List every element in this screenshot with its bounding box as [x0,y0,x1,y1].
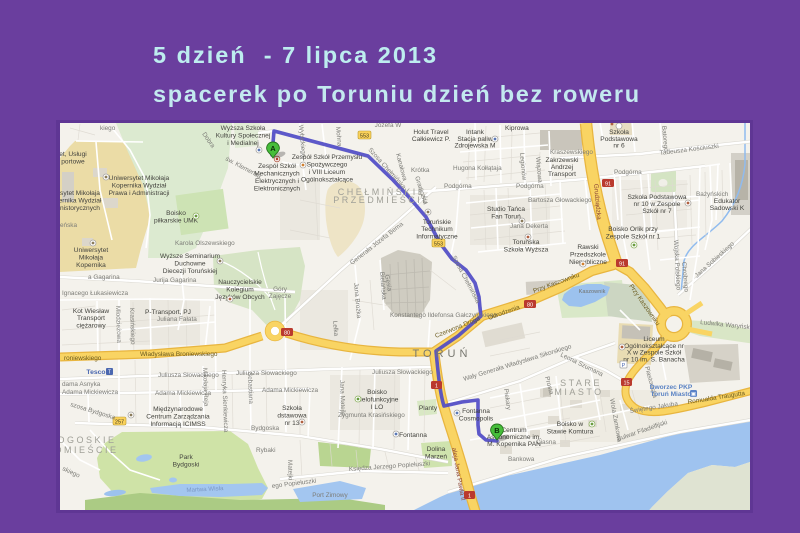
svg-text:Jana Matejki: Jana Matejki [338,380,346,416]
svg-text:Krasińskiego: Krasińskiego [128,308,136,345]
svg-text:P: P [622,363,626,369]
svg-text:Rybaki: Rybaki [256,447,276,454]
svg-text:Podgórna: Podgórna [516,183,544,190]
svg-text:kiego: kiego [100,125,116,132]
svg-text:Krótka: Krótka [411,167,430,174]
svg-text:Port Zimowy: Port Zimowy [312,492,348,499]
svg-text:Bankowa: Bankowa [508,456,535,463]
svg-text:Kaszownik: Kaszownik [579,289,606,295]
svg-text:Studio TańcaFan Toruń: Studio TańcaFan Toruń [487,206,525,221]
svg-text:Tesco: Tesco [86,369,105,376]
svg-text:Juliusza Słowackiego: Juliusza Słowackiego [158,372,219,379]
svg-text:TORUŃ: TORUŃ [413,347,472,360]
svg-text:Zygmunta Krasińskiego: Zygmunta Krasińskiego [338,412,405,419]
svg-text:T: T [108,370,111,376]
svg-text:Bydgoska: Bydgoska [251,425,280,432]
svg-text:spacerek po Toruniu dzień bez: spacerek po Toruniu dzień bez roweru [153,81,641,107]
svg-text:Uniwersytet MikołajaKopernika: Uniwersytet MikołajaKopernika WydziałPra… [109,175,170,197]
svg-text:Kiprowa: Kiprowa [505,125,529,132]
svg-text:Władysława Broniewskiego: Władysława Broniewskiego [140,351,218,358]
svg-text:PRZEDMIEŚCIE: PRZEDMIEŚCIE [333,194,431,205]
svg-text:5 dzień - 7 lipca 2013: 5 dzień - 7 lipca 2013 [153,42,438,68]
svg-text:DMIEŚCIE: DMIEŚCIE [55,444,119,455]
svg-text:Jurija Gagarina: Jurija Gagarina [153,277,197,284]
svg-text:B: B [494,426,500,435]
svg-text:Adama Mickiewicza: Adama Mickiewicza [62,389,119,396]
svg-text:Juliusza Słowackiego: Juliusza Słowackiego [372,369,433,376]
svg-text:Bażyńskich: Bażyńskich [696,191,729,198]
svg-text:Podgórna: Podgórna [614,169,642,176]
svg-text:Jana Dekerta: Jana Dekerta [510,223,548,230]
svg-text:Juliana Fałata: Juliana Fałata [157,316,197,323]
svg-text:1: 1 [435,383,438,389]
svg-text:sytet Mikołajaernika Wydziałni: sytet Mikołajaernika Wydziałnistorycznyc… [59,190,102,212]
svg-text:Karola Olszewskiego: Karola Olszewskiego [175,240,235,247]
svg-text:DGOSKIE: DGOSKIE [58,435,117,445]
svg-text:MiędzynarodoweCentrum Zarządza: MiędzynarodoweCentrum ZarządzaniaInforma… [146,406,210,428]
svg-text:EdukatorSadowski K: EdukatorSadowski K [710,198,745,212]
svg-text:Podgórna: Podgórna [444,183,472,190]
svg-text:A: A [270,144,276,153]
svg-text:Sebastiana: Sebastiana [246,372,254,405]
svg-text:a Gagarina: a Gagarina [88,274,120,281]
svg-text:Bartosza Głowackiego: Bartosza Głowackiego [528,197,592,204]
svg-text:Fontanna: Fontanna [399,432,427,439]
svg-text:15: 15 [623,380,629,386]
svg-text:Kot WiesławTransportciężarowy: Kot WiesławTransportciężarowy [73,308,110,329]
svg-text:eńska: eńska [60,222,77,229]
svg-text:Konstantego Ildefonsa Gałczyńs: Konstantego Ildefonsa Gałczyńskiego [390,312,497,319]
svg-text:80: 80 [284,330,290,336]
svg-text:Matejki: Matejki [286,460,294,480]
svg-text:Adama Mickiewicza: Adama Mickiewicza [262,387,319,394]
svg-text:MIASTO: MIASTO [554,387,603,397]
svg-text:FontannaCosmopolis: FontannaCosmopolis [459,408,494,423]
svg-text:80: 80 [527,302,533,308]
svg-text:Lelka: Lelka [331,321,339,337]
svg-text:553: 553 [360,133,369,139]
svg-text:91: 91 [619,261,625,267]
svg-text:P-Transport, PJ: P-Transport, PJ [145,309,191,316]
svg-text:Ignacego Łukasiewicza: Ignacego Łukasiewicza [62,290,129,297]
svg-text:Holut TravelCałkiewicz P.: Holut TravelCałkiewicz P. [412,129,451,143]
svg-text:Józefa W: Józefa W [375,122,403,129]
svg-text:Dworzec PKPToruń Miasto: Dworzec PKPToruń Miasto [650,384,693,398]
svg-text:Hugona Kołłątaja: Hugona Kołłątaja [453,165,502,172]
svg-text:257: 257 [115,419,124,425]
svg-text:Juliusza Słowackiego: Juliusza Słowackiego [236,370,297,377]
svg-text:1: 1 [468,493,471,499]
svg-text:Kraszewskiego: Kraszewskiego [550,149,593,156]
svg-text:Młodzieżowa: Młodzieżowa [114,306,122,344]
svg-text:Zespół SzkółMechanicznychElekt: Zespół SzkółMechanicznychElektrycznych i… [254,163,301,193]
svg-text:553: 553 [434,241,443,247]
svg-text:Planty: Planty [419,405,438,412]
svg-text:Mikołaja Reja: Mikołaja Reja [201,368,209,407]
svg-text:91: 91 [605,181,611,187]
svg-text:Boisko Orlik przyZespole Szkół: Boisko Orlik przyZespole Szkół nr 1 [606,226,661,241]
svg-text:▣: ▣ [691,392,697,398]
svg-text:roniewskiego: roniewskiego [64,355,102,362]
svg-text:DolinaMarzeń: DolinaMarzeń [425,446,447,461]
svg-text:dama Asnyka: dama Asnyka [62,381,101,388]
svg-text:et, Usługiportowe: et, Usługiportowe [59,151,87,166]
